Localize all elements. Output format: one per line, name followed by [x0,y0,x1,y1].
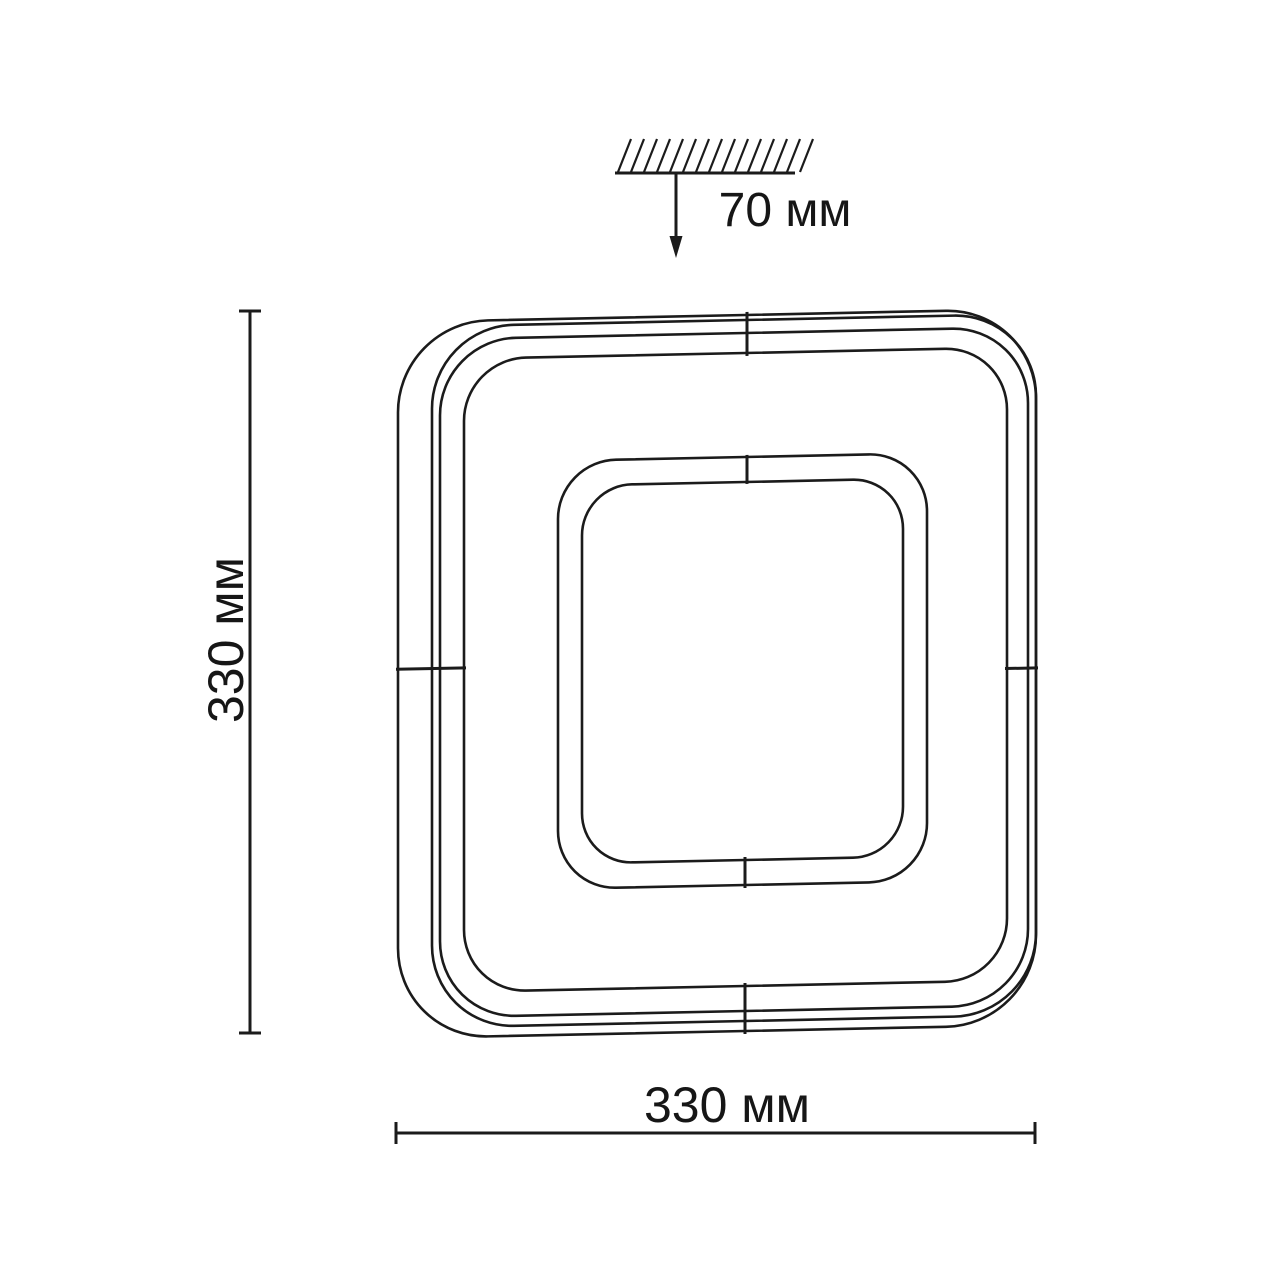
outer-left-seam-tick [396,668,466,669]
fixture-rim-inner-outline [440,327,1028,1017]
height-dimension: 330 мм [198,311,261,1033]
outer-right-seam-tick [1005,668,1038,669]
dimension-diagram-canvas: 70 мм 330 мм 330 мм [0,0,1280,1280]
depth-dimension-label: 70 мм [719,184,852,237]
width-dimension-label: 330 мм [644,1077,810,1133]
hatch-strokes [618,139,813,172]
diagram-page: 70 мм 330 мм 330 мм [0,0,1280,1280]
center-panel-inner-outline [582,479,903,864]
ceiling-hatch-symbol [615,139,813,173]
height-dimension-label: 330 мм [198,557,254,723]
fixture-drawing [396,306,1038,1041]
fixture-rim-outer-outline [432,314,1036,1028]
depth-dimension: 70 мм [670,173,852,258]
depth-arrow-head [670,236,683,258]
center-panel-outer-outline [558,453,927,889]
fixture-back-silhouette-outline [398,309,1036,1038]
seam-ticks [396,306,1038,1041]
outer-light-ring-inner-outline [464,348,1007,992]
width-dimension: 330 мм [396,1077,1035,1144]
